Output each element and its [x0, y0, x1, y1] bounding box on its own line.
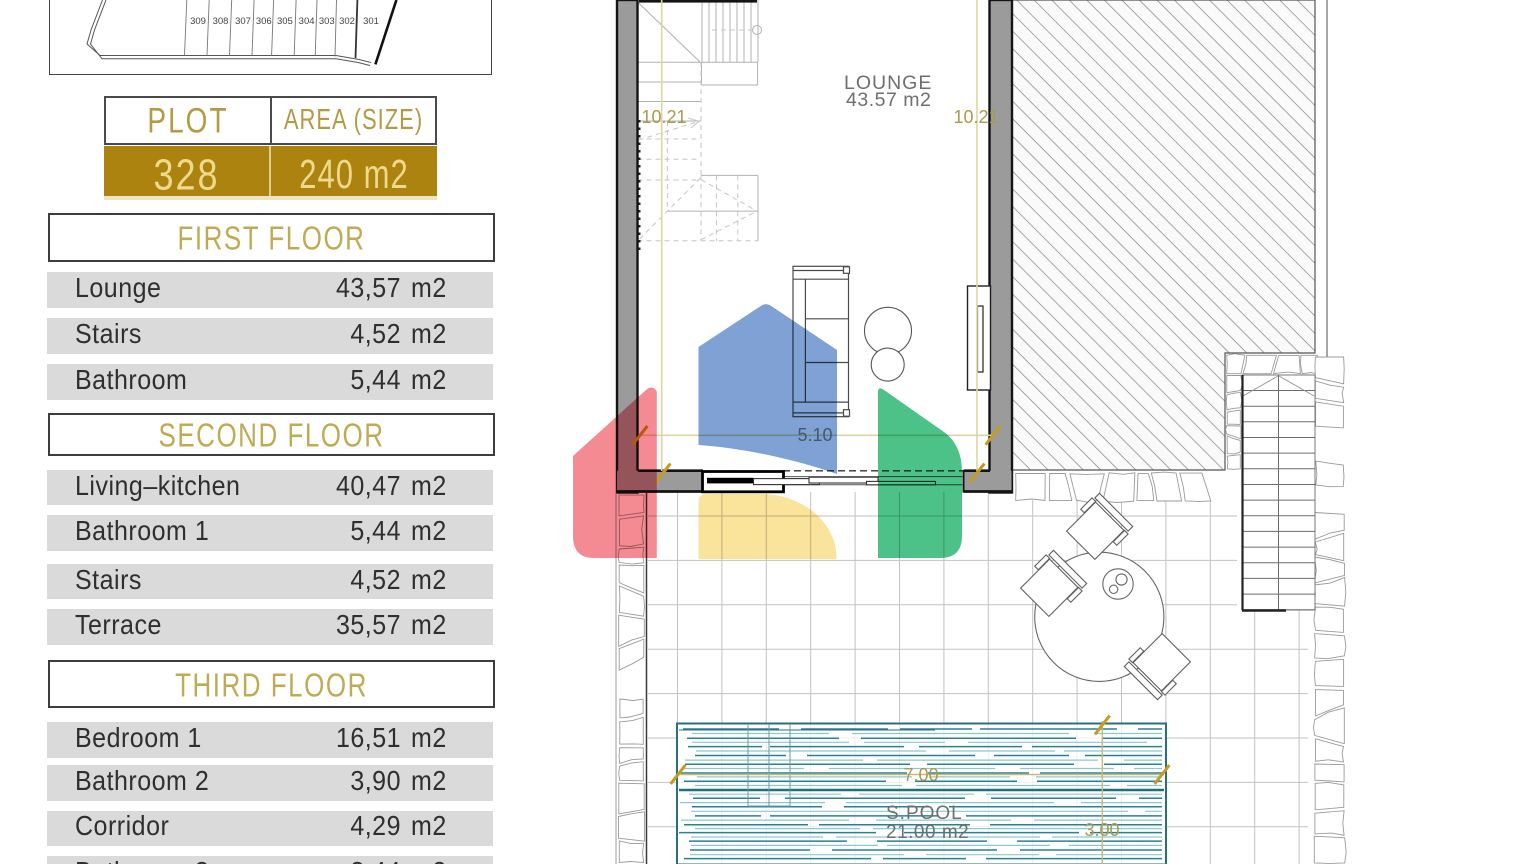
- svg-text:21.00 m2: 21.00 m2: [886, 822, 969, 843]
- svg-text:10.21: 10.21: [953, 107, 998, 127]
- svg-text:3.00: 3.00: [1084, 820, 1119, 840]
- svg-text:S.POOL: S.POOL: [886, 803, 963, 824]
- svg-text:43.57 m2: 43.57 m2: [846, 89, 931, 111]
- svg-text:10.21: 10.21: [641, 107, 686, 127]
- svg-text:7.00: 7.00: [903, 765, 938, 785]
